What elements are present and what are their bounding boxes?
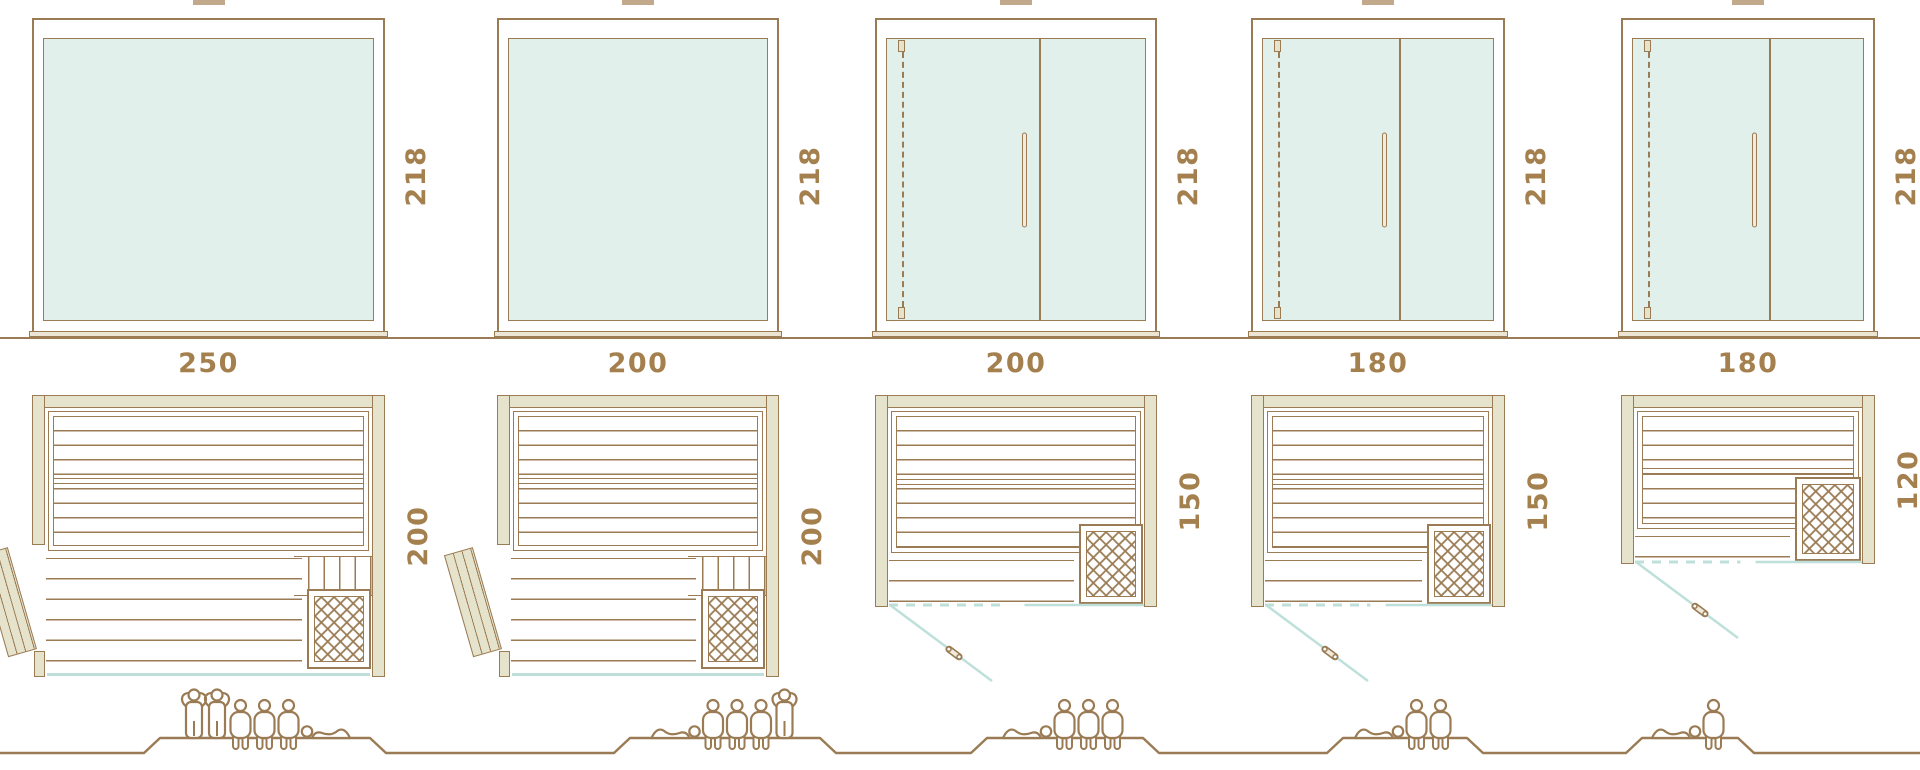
front-height-label: 218 [1522,116,1552,236]
capacity-row [0,690,1920,770]
wall-left [1251,395,1264,607]
glass-front-line [512,673,764,676]
door-hinge-bottom [1644,307,1651,319]
front-height-label: 218 [1892,116,1920,236]
floor-boards [1265,560,1422,604]
bench-front-edge [54,478,363,484]
glass-door-handle [1022,132,1027,227]
person-standing-head [189,690,200,701]
person-lying-body [1355,730,1393,738]
person-sitting-head [732,700,743,711]
plan-depth-label: 150 [1176,441,1206,561]
heater-lattice-fill [315,597,363,661]
front-height-label: 218 [796,116,826,236]
heater [307,589,371,669]
heater-grille [1434,531,1484,597]
heater-grille [314,596,364,662]
person-lying-head [302,726,312,736]
door-hinge-top [1274,40,1281,52]
heater-lattice [1435,532,1483,596]
wall-left [32,395,45,545]
person-lying-body [1003,730,1041,738]
person-sitting-torso [1407,712,1427,738]
people-group-1 [182,690,350,750]
wall-right [766,395,779,677]
wall-back [32,395,385,408]
person-sitting-torso [231,712,251,738]
upper-bench-slats [518,416,758,546]
floor-boards [511,558,696,674]
front-width-label: 250 [32,349,385,379]
door-handle-plan [945,645,963,660]
plan-depth-label: 200 [798,476,828,596]
front-width-label: 200 [875,349,1157,379]
heater-lattice [709,597,757,661]
front-glass [1632,38,1864,321]
elevation-sill [1618,331,1878,337]
plan-depth-label: 150 [1524,441,1554,561]
door-handle-plan [1691,602,1709,617]
sauna-size-diagram: 2502182002002182002002181501802181501802… [0,0,1920,770]
glass-front-line [47,673,370,676]
sauna-model-5: 180218120 [1621,0,1875,770]
heater [1795,477,1861,561]
person-sitting-torso [727,712,747,738]
person-lying-head [1690,726,1700,736]
wall-left [1621,395,1634,564]
wall-left [497,395,510,545]
door-hinge-top [898,40,905,52]
wall-right [1144,395,1157,607]
front-elevation [875,18,1157,334]
front-height-label: 218 [1174,116,1204,236]
people-group-2 [652,690,797,750]
door-jamb [499,651,510,677]
wall-left [875,395,888,607]
front-glass [43,38,374,321]
door-hinge-bottom [1274,307,1281,319]
person-lying-head [1041,726,1051,736]
heater-grille [1802,484,1854,554]
glass-door-handle [1752,132,1757,227]
floor-boards [889,560,1074,604]
person-lying-head [689,726,699,736]
person-sitting-torso [703,712,723,738]
elevation-sill [1248,331,1508,337]
heater-lattice-fill [1435,532,1483,596]
heater-lattice-fill [1087,532,1135,596]
wall-back [1621,395,1875,408]
plan-interior [1264,408,1492,607]
bench-front-edge [1273,479,1483,485]
person-sitting-torso [1431,712,1451,738]
bench-front-edge [519,478,757,484]
door-hinge-line [902,42,904,317]
person-sitting-torso [1055,712,1075,738]
person-sitting-torso [751,712,771,738]
door-hinge-top [1644,40,1651,52]
heater [1427,524,1491,604]
sauna-model-3: 200218150 [875,0,1157,770]
glass-door-divider [1039,39,1041,320]
heater-lattice-fill [709,597,757,661]
sauna-model-4: 180218150 [1251,0,1505,770]
elevation-sill [494,331,782,337]
person-sitting-head [259,700,270,711]
heater-lattice [1087,532,1135,596]
front-door-open-line [1636,562,1738,638]
plan-interior [1634,408,1862,564]
plan-interior [888,408,1144,607]
heater-lattice [1803,485,1853,553]
door-jamb [34,651,45,677]
front-width-label: 180 [1251,349,1505,379]
wall-back [1251,395,1505,408]
floor-plan [875,395,1157,607]
plan-depth-label: 200 [404,476,434,596]
person-sitting-torso [1079,712,1099,738]
bench-front-edge [1643,468,1853,474]
elevation-sill [872,331,1160,337]
front-door-open-line [890,605,992,681]
person-standing-head [779,690,790,701]
person-sitting-torso [1103,712,1123,738]
front-width-label: 180 [1621,349,1875,379]
upper-bench [48,411,369,551]
person-sitting-head [708,700,719,711]
front-height-label: 218 [402,116,432,236]
wall-right [1862,395,1875,564]
floor-plan [1251,395,1505,607]
person-lying-body [652,730,690,738]
floor-plan [32,395,385,677]
cropped-top-label [622,0,654,5]
front-glass [1262,38,1494,321]
floor-plan [1621,395,1875,564]
person-lying-head [1393,726,1403,736]
ground-line [0,738,1920,753]
person-sitting-torso [255,712,275,738]
person-lying-head-right [1652,726,1700,738]
sauna-model-2: 200218200 [497,0,779,770]
front-elevation [1251,18,1505,334]
heater [701,589,765,669]
elevation-sill [29,331,388,337]
person-lying-body [1652,730,1690,738]
front-glass [886,38,1146,321]
person-sitting-torso [1704,712,1724,738]
cropped-top-label [1000,0,1032,5]
door-hinge-line [1278,42,1280,317]
heater-lattice-fill [1803,485,1853,553]
door-leaf-open [444,547,502,657]
door-hinge-line [1648,42,1650,317]
person-sitting-head [235,700,246,711]
door-handle-plan [1321,645,1339,660]
front-elevation [497,18,779,334]
wall-back [875,395,1157,408]
person-sitting-head [1059,700,1070,711]
front-glass [508,38,768,321]
plan-depth-label: 120 [1894,420,1920,540]
person-sitting-head [283,700,294,711]
wall-right [372,395,385,677]
person-lying-body [312,730,350,738]
person-lying-head-left [302,726,350,738]
floor-plan [497,395,779,677]
wall-right [1492,395,1505,607]
person-lying-head-right [1003,726,1051,738]
people-group-3 [1003,700,1123,749]
front-door-open-line [1266,605,1368,681]
person-lying-head-right [1355,726,1403,738]
front-width-label: 200 [497,349,779,379]
bench-front-edge [897,479,1135,485]
heater-lattice [315,597,363,661]
upper-bench-slats [53,416,364,546]
person-sitting-head [756,700,767,711]
upper-bench [513,411,763,551]
people-group-4 [1355,700,1451,749]
person-sitting-head [1083,700,1094,711]
person-standing-head [212,690,223,701]
person-sitting-torso [279,712,299,738]
cropped-top-label [1732,0,1764,5]
front-elevation [32,18,385,334]
plan-interior [45,408,372,677]
cropped-top-label [1362,0,1394,5]
sauna-model-1: 250218200 [32,0,385,770]
person-sitting-head [1435,700,1446,711]
glass-door-divider [1399,39,1401,320]
heater-grille [708,596,758,662]
people-group-5 [1652,700,1724,749]
floor-boards [46,558,302,674]
glass-door-handle [1382,132,1387,227]
person-lying-head-right [652,726,700,738]
cropped-top-label [193,0,225,5]
plan-interior [510,408,766,677]
wall-back [497,395,779,408]
person-sitting-head [1411,700,1422,711]
front-elevation [1621,18,1875,334]
glass-door-divider [1769,39,1771,320]
heater [1079,524,1143,604]
person-sitting-head [1107,700,1118,711]
door-hinge-bottom [898,307,905,319]
heater-grille [1086,531,1136,597]
person-sitting-head [1708,700,1719,711]
